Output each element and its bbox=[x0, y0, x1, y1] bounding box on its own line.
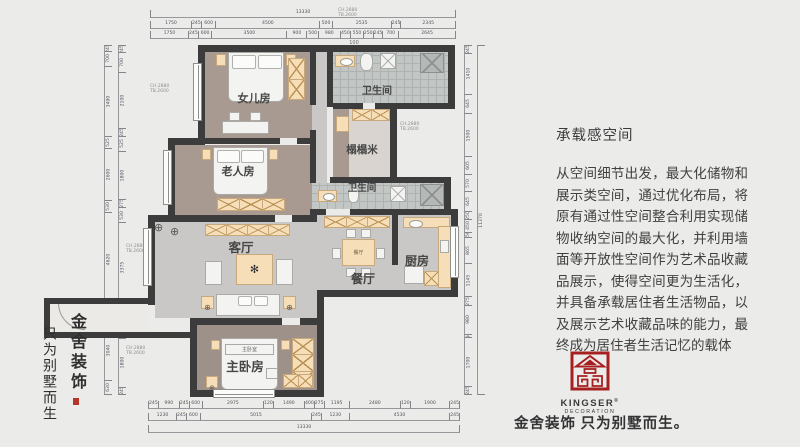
dim-segment: 700 bbox=[383, 31, 399, 39]
room-label-daughter: 女儿房 bbox=[218, 90, 290, 106]
dim-segment: 530 bbox=[118, 208, 126, 223]
dim-segment: 570 bbox=[464, 175, 472, 192]
nightstand bbox=[269, 149, 278, 160]
dim-segment: 275 bbox=[118, 200, 126, 208]
ceiling-annotation: CH.2880TB.2600 bbox=[400, 122, 419, 132]
dim-segment: 600 bbox=[187, 413, 201, 421]
washer bbox=[380, 53, 396, 69]
dim-right-total: 11370 bbox=[477, 45, 485, 395]
dim-segment: 700 bbox=[118, 53, 126, 72]
brand-logo: KINGSER® DECORATION bbox=[558, 351, 622, 415]
dim-segment: 1195 bbox=[325, 401, 350, 409]
dim-segment: 400 bbox=[305, 401, 315, 409]
wall bbox=[375, 103, 455, 109]
side-table bbox=[276, 259, 293, 285]
ceiling-annotation: CH.2880TB.2600 bbox=[338, 8, 357, 18]
wall bbox=[317, 318, 324, 397]
dim-segment: 2345 bbox=[401, 21, 456, 29]
dim-segment: 275 bbox=[315, 401, 325, 409]
pillow bbox=[241, 150, 264, 163]
dim-segment: 275 bbox=[464, 297, 472, 306]
dim-segment: 1900 bbox=[411, 401, 450, 409]
wall bbox=[292, 215, 317, 222]
dim-segment: 2480 bbox=[350, 401, 401, 409]
sofa-end-table: ⊕ bbox=[283, 296, 296, 309]
dim-segment: 1800 bbox=[118, 152, 126, 200]
wall bbox=[197, 318, 282, 325]
shower bbox=[420, 53, 444, 73]
room-label-bath1: 卫生间 bbox=[346, 82, 408, 97]
dim-segment: 250 bbox=[364, 31, 374, 39]
dim-segment: 245 bbox=[177, 413, 187, 421]
dim-segment: 900 bbox=[287, 31, 307, 39]
dim-segment: 2645 bbox=[399, 31, 456, 39]
dim-segment: 245 bbox=[312, 413, 322, 421]
brand-name-text: 金舍装饰 bbox=[68, 313, 85, 393]
chair bbox=[229, 112, 240, 121]
shower bbox=[420, 184, 444, 206]
dim-segment: 13330 bbox=[150, 10, 456, 18]
dim-segment: 120 bbox=[264, 401, 274, 409]
ceiling-annotation: CH.2880TB.2600 bbox=[126, 346, 145, 356]
dim-segment: 1230 bbox=[148, 413, 177, 421]
dim-segment: 600 bbox=[190, 401, 203, 409]
dim-segment: 605 bbox=[464, 157, 472, 175]
desk bbox=[222, 121, 269, 134]
dim-segment: 2600 bbox=[104, 149, 112, 202]
wall bbox=[327, 45, 333, 107]
window bbox=[213, 389, 275, 398]
ceiling-fixture-icon: ⊕ bbox=[154, 221, 163, 234]
dim-segment: 250 bbox=[464, 212, 472, 220]
dim-segment: 530 bbox=[104, 201, 112, 213]
dim-top-row1: 1750245600450050025352452345 bbox=[150, 21, 456, 29]
dim-segment: 245 bbox=[450, 413, 460, 421]
dim-segment: 5015 bbox=[201, 413, 312, 421]
side-table bbox=[205, 261, 222, 285]
dim-segment: 1230 bbox=[322, 413, 350, 421]
room-label-kitchen: 厨房 bbox=[392, 252, 442, 269]
chair bbox=[376, 248, 385, 259]
pillow bbox=[258, 55, 282, 69]
dim-segment: 990 bbox=[159, 401, 180, 409]
plant-icon: ✻ bbox=[237, 263, 272, 276]
dim-segment: 1490 bbox=[274, 401, 305, 409]
nightstand bbox=[281, 340, 290, 350]
nightstand bbox=[202, 149, 211, 160]
dim-segment: 1700 bbox=[464, 338, 472, 387]
dining-cabinet bbox=[324, 216, 390, 228]
dim-segment: 4620 bbox=[104, 213, 112, 306]
wall bbox=[44, 298, 154, 304]
logo-wordmark: KINGSER® bbox=[558, 398, 622, 409]
bench-cabinet bbox=[283, 374, 313, 388]
ceiling-annotation: CH.2880TB.2600 bbox=[150, 84, 169, 94]
room-label-living: 客厅 bbox=[212, 237, 270, 256]
dim-segment: 645 bbox=[464, 95, 472, 114]
toilet bbox=[360, 53, 373, 71]
wall bbox=[390, 103, 397, 183]
wall bbox=[317, 290, 458, 297]
wall bbox=[190, 318, 197, 397]
slogan-tagline: 只为别墅而生。 bbox=[581, 416, 690, 432]
dim-segment: 630 bbox=[104, 381, 112, 395]
dim-segment: 11370 bbox=[477, 45, 485, 395]
room-label-bath2: 卫生间 bbox=[333, 180, 391, 194]
tv-cabinet bbox=[205, 224, 290, 236]
dim-segment: 1410 bbox=[464, 54, 472, 95]
dim-segment: 245 bbox=[118, 129, 126, 136]
dim-segment: 245 bbox=[104, 45, 112, 52]
chair bbox=[346, 229, 356, 238]
room-label-master: 主卧房 bbox=[212, 356, 278, 375]
dim-segment: 700 bbox=[104, 52, 112, 67]
dim-segment: 500 bbox=[307, 31, 319, 39]
dim-segment: 980 bbox=[464, 306, 472, 335]
window bbox=[143, 228, 152, 286]
pillow bbox=[232, 55, 256, 69]
article-body: 从空间细节出发，最大化储物和展示类空间，通过优化布局，将原有通过性空间整合利用实… bbox=[556, 163, 748, 357]
dim-segment: 600 bbox=[202, 21, 217, 29]
dim-segment: 245 bbox=[464, 387, 472, 395]
dim-left-inner: 2457002100245525180027553033752756301800… bbox=[118, 45, 126, 395]
bed-label: 主卧室 bbox=[226, 347, 273, 353]
bathroom-sink bbox=[335, 55, 355, 67]
sofa-end-table: ⊕ bbox=[201, 296, 214, 309]
chair bbox=[250, 112, 261, 121]
page: 13330 1750245600450050025352452345 17502… bbox=[0, 0, 800, 447]
dim-bottom-row2: 1230245600501524512304530245 bbox=[148, 413, 460, 421]
dim-segment: 550 bbox=[351, 31, 364, 39]
dim-segment: 120 bbox=[401, 401, 411, 409]
dim-top-total: 13330 bbox=[150, 10, 456, 18]
wall bbox=[175, 215, 275, 222]
dim-segment: 245 bbox=[189, 31, 199, 39]
pillow bbox=[217, 150, 240, 163]
dim-left-outer: 2457003490525260053046206503040630 bbox=[104, 45, 112, 395]
dim-top-row2: 1750245600350090050098045055025024570026… bbox=[150, 31, 456, 39]
slogan-brand: 金舍装饰 bbox=[514, 416, 576, 432]
window bbox=[163, 150, 172, 205]
vertical-brand-slogan: 金舍装饰 只为别墅而生 bbox=[38, 313, 88, 438]
dim-right-inner: 2451410645150060557064525045015086511452… bbox=[464, 45, 472, 395]
dim-bottom-row1: 2459902456002975120149040027511952480120… bbox=[148, 401, 460, 409]
dim-segment: 245 bbox=[374, 31, 384, 39]
dim-segment: 3500 bbox=[212, 31, 287, 39]
dim-segment: 13330 bbox=[148, 425, 460, 433]
nightstand bbox=[211, 340, 220, 350]
washer bbox=[390, 186, 406, 202]
dim-segment: 2535 bbox=[333, 21, 392, 29]
article-title: 承载感空间 bbox=[556, 124, 634, 145]
window bbox=[193, 63, 202, 121]
registered-mark: ® bbox=[614, 398, 619, 404]
vertical-brand-tagline: 只为别墅而生 bbox=[38, 326, 58, 438]
dim-segment: 245 bbox=[450, 401, 460, 409]
kitchen-cabinet bbox=[424, 271, 439, 286]
cabinet bbox=[217, 198, 285, 211]
dim-segment: 450 bbox=[341, 31, 352, 39]
tatami-table bbox=[336, 116, 349, 132]
tatami-cabinet bbox=[352, 109, 390, 121]
coffee-table: ✻ bbox=[236, 254, 273, 285]
dim-segment: 2975 bbox=[203, 401, 264, 409]
wall bbox=[205, 138, 280, 144]
red-seal-icon bbox=[73, 398, 79, 405]
dim-segment: 525 bbox=[104, 137, 112, 148]
sofa-pillow bbox=[254, 296, 268, 306]
headboard: 主卧室 bbox=[225, 344, 274, 355]
dim-segment: 245 bbox=[148, 401, 159, 409]
wall bbox=[350, 209, 457, 215]
dim-segment: 245 bbox=[192, 21, 202, 29]
sofa-pillow bbox=[238, 296, 252, 306]
dim-segment: 645 bbox=[464, 192, 472, 211]
dim-segment: 4530 bbox=[350, 413, 450, 421]
dim-segment: 1145 bbox=[464, 264, 472, 297]
dim-segment: 600 bbox=[199, 31, 213, 39]
kingser-logo-icon bbox=[570, 351, 610, 391]
wall bbox=[448, 45, 455, 109]
dim-segment: 2100 bbox=[118, 73, 126, 129]
dining-table: 餐厅 bbox=[342, 239, 375, 266]
dim-segment: 1750 bbox=[150, 21, 192, 29]
wall bbox=[310, 45, 316, 105]
room-label-elder: 老人房 bbox=[205, 163, 271, 179]
chair bbox=[361, 229, 371, 238]
corner-table: ⊕ bbox=[206, 376, 218, 388]
dim-segment: 1750 bbox=[150, 31, 189, 39]
dim-segment: 525 bbox=[118, 137, 126, 152]
vertical-brand-name: 金舍装饰 bbox=[64, 313, 88, 438]
dim-segment: 1800 bbox=[118, 339, 126, 387]
dim-bottom-total: 13330 bbox=[148, 425, 460, 433]
dim-segment: 245 bbox=[118, 388, 126, 395]
window bbox=[450, 226, 459, 278]
dim-segment: 450 bbox=[464, 220, 472, 234]
dim-segment: 245 bbox=[464, 45, 472, 54]
dim-segment: 245 bbox=[392, 21, 402, 29]
dining-table-label: 餐厅 bbox=[343, 250, 374, 256]
dim-segment: 865 bbox=[464, 238, 472, 263]
dim-segment: 1500 bbox=[464, 114, 472, 157]
dim-segment: 245 bbox=[180, 401, 190, 409]
dim-segment: 245 bbox=[118, 45, 126, 53]
dim-segment: 4500 bbox=[216, 21, 320, 29]
room-label-dining: 餐厅 bbox=[336, 270, 390, 287]
bottom-slogan: 金舍装饰 只为别墅而生。 bbox=[514, 412, 689, 433]
wall bbox=[333, 103, 363, 109]
room-floor-living bbox=[317, 222, 324, 290]
room-label-tatami: 榻榻米 bbox=[337, 142, 387, 157]
ceiling-fixture-icon: ⊕ bbox=[170, 225, 179, 238]
wall bbox=[390, 177, 450, 183]
nightstand bbox=[216, 54, 226, 66]
dim-segment: 500 bbox=[320, 21, 332, 29]
dim-segment: 980 bbox=[319, 31, 341, 39]
wardrobe bbox=[288, 58, 305, 100]
chair bbox=[332, 248, 341, 259]
wall bbox=[310, 130, 316, 183]
dim-segment: 3490 bbox=[104, 67, 112, 137]
